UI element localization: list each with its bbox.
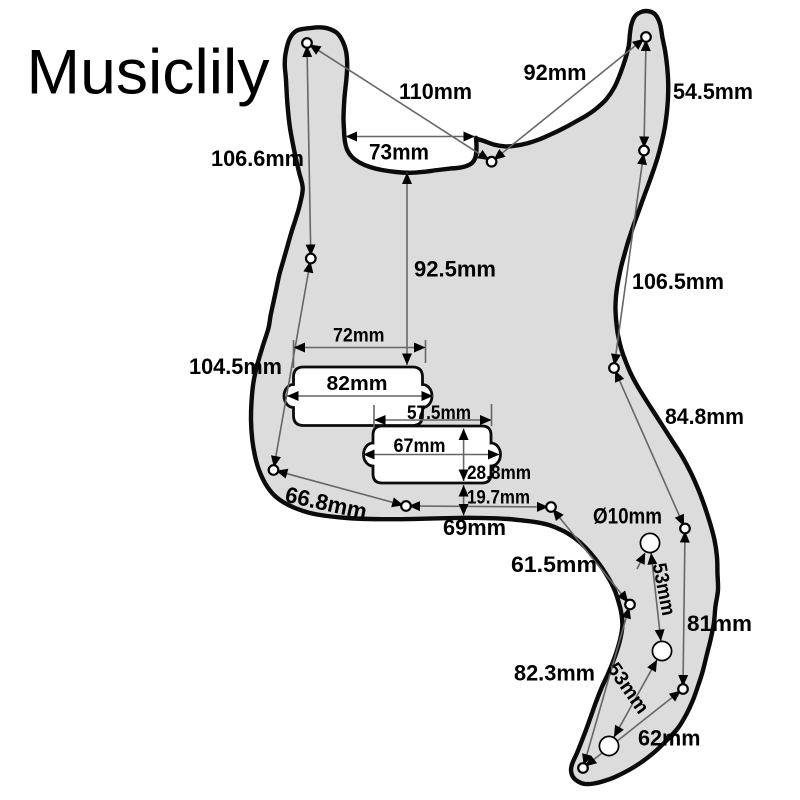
svg-text:104.5mm: 104.5mm bbox=[189, 354, 282, 379]
svg-text:72mm: 72mm bbox=[333, 325, 385, 347]
svg-text:28.8mm: 28.8mm bbox=[467, 462, 531, 484]
svg-text:82.3mm: 82.3mm bbox=[514, 661, 595, 686]
svg-text:106.6mm: 106.6mm bbox=[211, 146, 304, 171]
svg-text:Musiclily: Musiclily bbox=[27, 38, 270, 108]
svg-text:54.5mm: 54.5mm bbox=[673, 79, 753, 104]
svg-text:Ø10mm: Ø10mm bbox=[593, 504, 662, 529]
svg-text:61.5mm: 61.5mm bbox=[511, 552, 597, 577]
svg-text:57.5mm: 57.5mm bbox=[407, 402, 471, 424]
svg-text:92.5mm: 92.5mm bbox=[414, 257, 496, 282]
svg-text:19.7mm: 19.7mm bbox=[467, 486, 530, 508]
svg-text:106.5mm: 106.5mm bbox=[632, 269, 724, 294]
svg-text:92mm: 92mm bbox=[524, 60, 587, 85]
svg-text:62mm: 62mm bbox=[638, 726, 701, 751]
svg-text:69mm: 69mm bbox=[443, 515, 506, 540]
svg-text:82mm: 82mm bbox=[327, 372, 388, 395]
svg-text:73mm: 73mm bbox=[369, 140, 429, 165]
svg-text:84.8mm: 84.8mm bbox=[665, 404, 744, 429]
svg-text:81mm: 81mm bbox=[687, 611, 752, 636]
svg-text:67mm: 67mm bbox=[394, 435, 446, 457]
svg-text:110mm: 110mm bbox=[399, 79, 472, 104]
